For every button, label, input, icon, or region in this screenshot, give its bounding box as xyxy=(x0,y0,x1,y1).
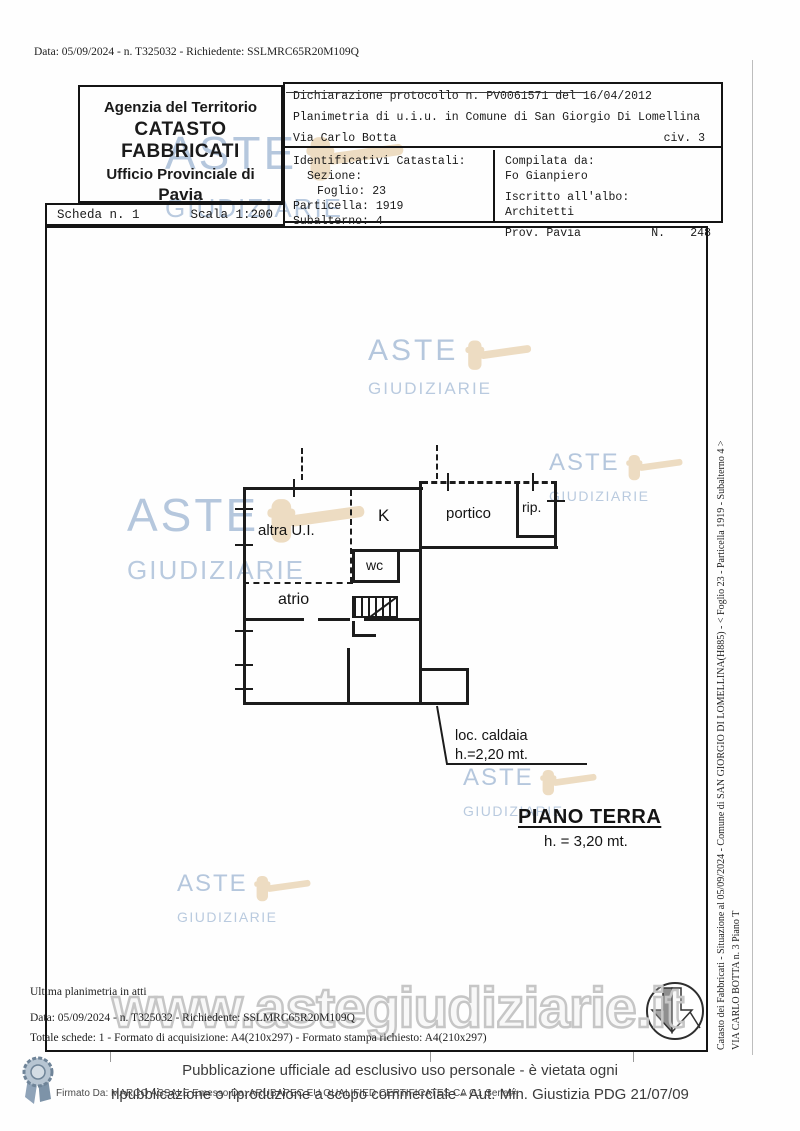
scale-value: Scala 1:200 xyxy=(190,208,273,222)
window-tick xyxy=(235,508,253,510)
ultima-planimetria-line: Ultima planimetria in atti xyxy=(30,986,147,998)
top-meta-line: Data: 05/09/2024 - n. T325032 - Richiede… xyxy=(34,46,359,58)
wall xyxy=(347,648,350,705)
wall xyxy=(246,618,304,621)
office-label: Ufficio Provinciale di xyxy=(80,166,281,183)
scheda-number: Scheda n. 1 xyxy=(57,208,140,222)
wall xyxy=(243,583,246,705)
room-label-portico: portico xyxy=(446,505,491,522)
planimetria-line: Planimetria di u.i.u. in Comune di San G… xyxy=(293,110,713,125)
wall xyxy=(516,535,557,538)
footer-reproduction-line: ripubblicazione o riproduzione a scopo c… xyxy=(0,1086,800,1103)
guide-dash xyxy=(436,445,438,479)
window-tick xyxy=(235,664,253,666)
wall xyxy=(466,668,469,705)
window-tick xyxy=(532,473,534,491)
catasto-fabbricati-title: CATASTO FABBRICATI xyxy=(80,119,281,163)
window-tick xyxy=(235,630,253,632)
sidebar-line-1: Catasto dei Fabbricati - Situazione al 0… xyxy=(714,228,729,1050)
wall xyxy=(364,618,422,621)
albo-label: Iscritto all'albo: xyxy=(505,190,711,205)
wall xyxy=(422,546,558,549)
room-label-altra-ui: altra U.I. xyxy=(258,522,315,539)
agency-header-box: Agenzia del Territorio CATASTO FABBRICAT… xyxy=(78,85,283,203)
floor-title: PIANO TERRA xyxy=(518,806,661,829)
catastali-column: Identificativi Catastali: Sezione: Fogli… xyxy=(285,150,493,221)
declaration-bottom-section: Identificativi Catastali: Sezione: Fogli… xyxy=(285,150,721,221)
boiler-room-height: h.=2,20 mt. xyxy=(455,747,528,763)
wall xyxy=(352,552,355,583)
wall-dashed xyxy=(422,481,557,484)
stairs xyxy=(352,596,398,618)
agency-name: Agenzia del Territorio xyxy=(80,99,281,116)
street-name: Via Carlo Botta xyxy=(293,132,397,145)
wall xyxy=(243,702,423,705)
scan-line-artifact xyxy=(286,92,586,93)
plan-frame xyxy=(45,226,708,1052)
guide-dash xyxy=(301,448,303,480)
wall xyxy=(352,549,422,552)
page-edge-line xyxy=(752,60,753,1055)
window-tick xyxy=(447,473,449,491)
catastali-title: Identificativi Catastali: xyxy=(293,154,485,169)
particella-field: Particella: 1919 xyxy=(293,199,485,214)
declaration-box: Dichiarazione protocollo n. PV0061571 de… xyxy=(283,82,723,223)
albo-value: Architetti xyxy=(505,205,711,220)
room-label-wc: wc xyxy=(366,557,383,573)
compilata-name: Fo Gianpiero xyxy=(505,169,711,184)
wall xyxy=(318,618,350,621)
wall xyxy=(516,484,519,538)
footer-publication-line: Pubblicazione ufficiale ad esclusivo uso… xyxy=(0,1062,800,1079)
window-tick xyxy=(547,500,565,502)
wall xyxy=(423,702,469,705)
wall xyxy=(419,551,422,705)
wall-dashed xyxy=(243,582,353,584)
sidebar-line-2: VIA CARLO BOTTA n. 3 Piano T xyxy=(729,228,744,1050)
wall xyxy=(554,481,557,549)
floor-height: h. = 3,20 mt. xyxy=(544,833,628,850)
window-tick xyxy=(235,688,253,690)
compilata-label: Compilata da: xyxy=(505,154,711,169)
civic-number: civ. 3 xyxy=(664,131,705,146)
province-name: Pavia xyxy=(80,185,281,205)
wall xyxy=(419,668,469,671)
wall xyxy=(352,580,400,583)
wall xyxy=(352,634,376,637)
compilata-column: Compilata da: Fo Gianpiero Iscritto all'… xyxy=(493,150,721,221)
sezione-field: Sezione: xyxy=(293,169,485,184)
room-label-atrio: atrio xyxy=(278,591,309,609)
bottom-data-line: Data: 05/09/2024 - n. T325032 - Richiede… xyxy=(30,1012,355,1024)
boiler-room-label: loc. caldaia xyxy=(455,728,528,744)
wall xyxy=(419,481,422,551)
declaration-top-section: Dichiarazione protocollo n. PV0061571 de… xyxy=(285,84,721,148)
wall xyxy=(243,487,423,490)
cadastral-document-page: Data: 05/09/2024 - n. T325032 - Richiede… xyxy=(0,0,800,1131)
foglio-field: Foglio: 23 xyxy=(293,184,485,199)
street-row: Via Carlo Botta civ. 3 xyxy=(293,131,713,146)
room-label-kitchen: K xyxy=(378,506,389,526)
wall xyxy=(243,487,246,585)
totale-schede-line: Totale schede: 1 - Formato di acquisizio… xyxy=(30,1032,487,1044)
window-tick xyxy=(235,544,253,546)
room-label-ripostiglio: rip. xyxy=(522,499,541,515)
window-tick xyxy=(293,479,295,497)
wall xyxy=(397,552,400,583)
scheda-scale-box: Scheda n. 1 Scala 1:200 xyxy=(45,203,285,226)
sidebar-vertical-text: Catasto dei Fabbricati - Situazione al 0… xyxy=(714,228,744,1050)
